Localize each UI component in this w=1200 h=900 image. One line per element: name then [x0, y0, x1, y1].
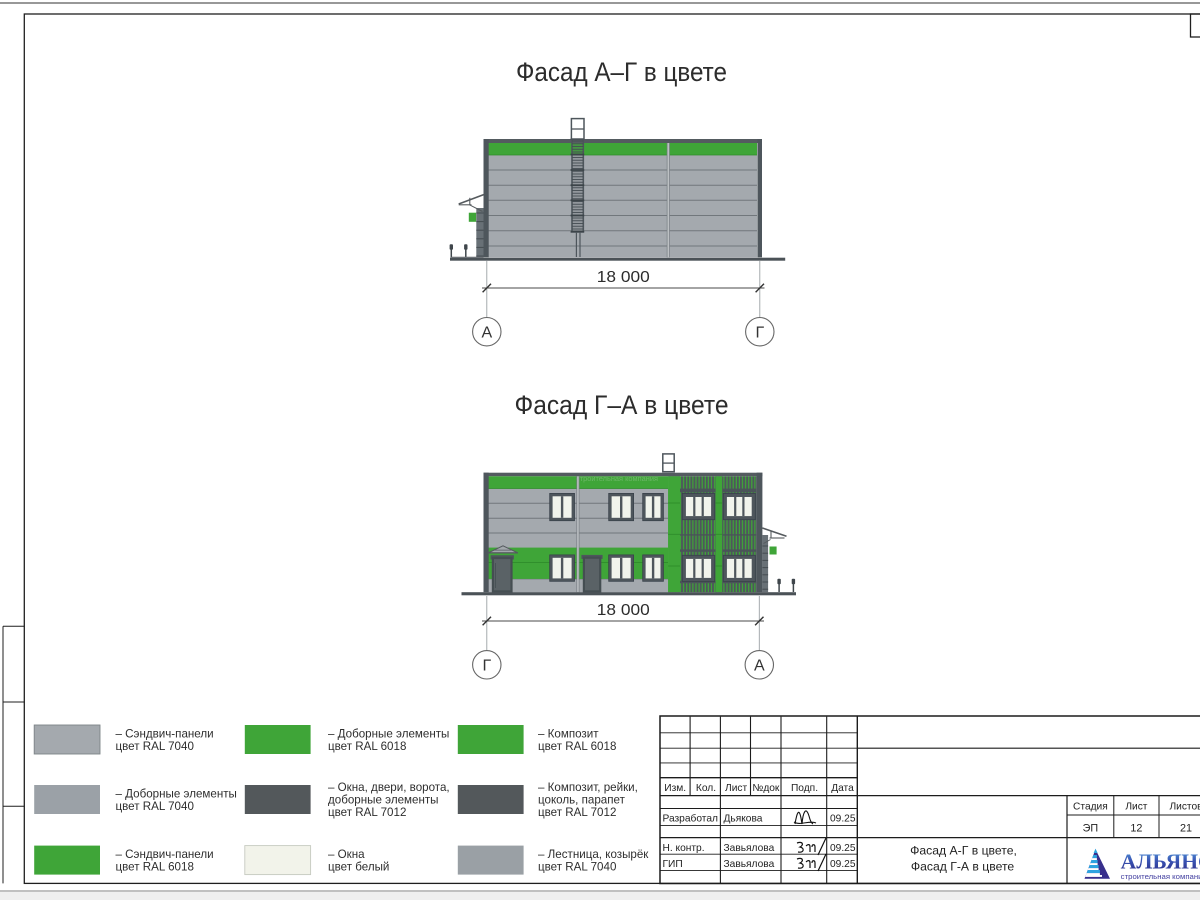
svg-text:цвет RAL 6018: цвет RAL 6018 [328, 740, 406, 753]
svg-text:цвет RAL 7040: цвет RAL 7040 [116, 800, 194, 813]
svg-text:12: 12 [1130, 823, 1142, 835]
svg-text:ЭП: ЭП [1083, 823, 1099, 835]
svg-text:цоколь, парапет: цоколь, парапет [538, 794, 626, 807]
svg-text:– Композит, рейки,: – Композит, рейки, [538, 781, 638, 794]
svg-text:Фасад А-Г в цвете,: Фасад А-Г в цвете, [910, 844, 1017, 858]
svg-text:цвет RAL 6018: цвет RAL 6018 [116, 860, 194, 873]
svg-text:А: А [754, 658, 765, 675]
svg-text:Завьялова: Завьялова [724, 843, 775, 854]
svg-text:цвет RAL 6018: цвет RAL 6018 [538, 740, 616, 753]
svg-text:Разработал: Разработал [663, 813, 719, 825]
svg-text:– Доборные элементы: – Доборные элементы [328, 727, 449, 740]
svg-text:строительная компания: строительная компания [1121, 874, 1200, 881]
svg-text:Изм.: Изм. [664, 783, 686, 794]
svg-text:Дьякова: Дьякова [724, 814, 763, 825]
svg-text:– Сэндвич-панели: – Сэндвич-панели [116, 727, 214, 740]
svg-text:цвет RAL 7040: цвет RAL 7040 [538, 860, 616, 873]
svg-text:№док: №док [752, 783, 780, 794]
svg-text:Фасад А–Г в цвете: Фасад А–Г в цвете [516, 57, 727, 87]
svg-text:ГИП: ГИП [663, 859, 683, 870]
svg-text:Подп.: Подп. [791, 783, 818, 794]
svg-text:Г: Г [482, 658, 491, 675]
svg-text:АЛЬЯНС: АЛЬЯНС [1121, 850, 1200, 874]
svg-text:Стадия: Стадия [1073, 802, 1108, 813]
svg-text:09.25: 09.25 [830, 843, 856, 854]
svg-text:– Окна, двери, ворота,: – Окна, двери, ворота, [328, 781, 450, 794]
svg-text:доборные элементы: доборные элементы [328, 794, 439, 807]
svg-text:Фасад Г-А в цвете: Фасад Г-А в цвете [911, 860, 1015, 874]
svg-text:09.25: 09.25 [830, 859, 856, 870]
svg-text:Лист: Лист [725, 783, 747, 794]
svg-text:– Лестница, козырёк: – Лестница, козырёк [538, 848, 649, 861]
svg-text:– Сэндвич-панели: – Сэндвич-панели [116, 848, 214, 861]
svg-text:цвет RAL 7012: цвет RAL 7012 [538, 806, 616, 819]
svg-text:Фасад Г–А в цвете: Фасад Г–А в цвете [515, 390, 729, 420]
svg-text:Завьялова: Завьялова [724, 859, 775, 870]
svg-text:Дата: Дата [831, 783, 854, 794]
svg-text:– Доборные элементы: – Доборные элементы [116, 787, 237, 800]
svg-text:Кол.: Кол. [696, 783, 716, 794]
svg-text:цвет белый: цвет белый [328, 860, 389, 873]
svg-text:18 000: 18 000 [597, 269, 650, 286]
svg-text:Г: Г [755, 325, 764, 342]
svg-text:строительная компания: строительная компания [576, 476, 658, 483]
svg-text:09.25: 09.25 [830, 814, 856, 825]
svg-text:Н. контр.: Н. контр. [663, 843, 705, 854]
svg-text:21: 21 [1180, 823, 1192, 835]
svg-text:Листов: Листов [1169, 802, 1200, 813]
svg-text:Лист: Лист [1125, 802, 1147, 813]
svg-text:– Окна: – Окна [328, 848, 365, 861]
svg-text:цвет RAL 7012: цвет RAL 7012 [328, 806, 406, 819]
svg-text:18 000: 18 000 [597, 602, 650, 619]
svg-text:цвет RAL 7040: цвет RAL 7040 [116, 740, 194, 753]
svg-text:А: А [481, 325, 492, 342]
svg-text:– Композит: – Композит [538, 727, 599, 740]
